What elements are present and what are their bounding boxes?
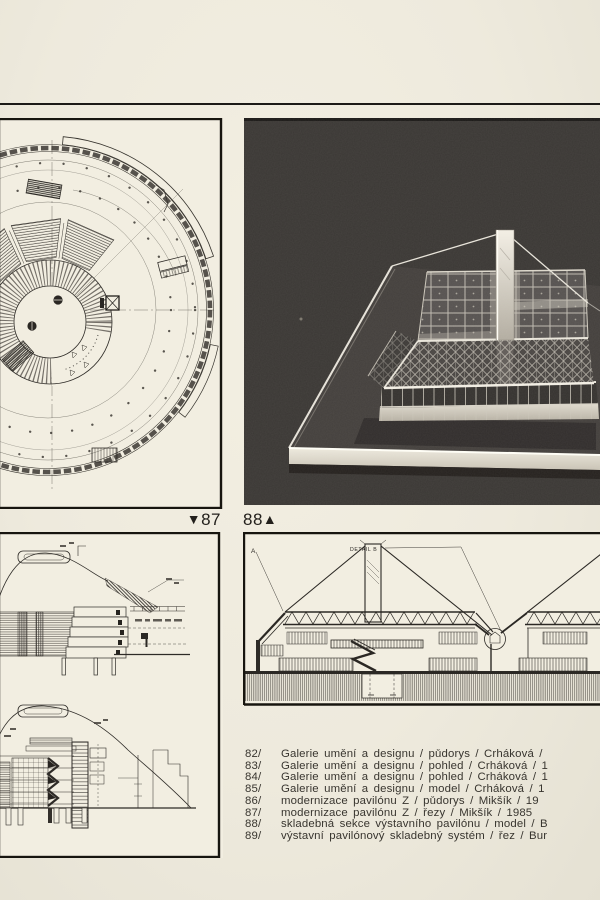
caption-row-86: 86/modernizace pavilónu Z / půdorys / Mi… [245, 796, 600, 808]
caption-text: Galerie umění a designu / model / Crháko… [281, 784, 600, 796]
caption-row-82: 82/Galerie umění a designu / půdorys / C… [245, 749, 600, 761]
figure-ref-88: 88▲ [243, 510, 277, 530]
figure-ref-88-number: 88 [243, 510, 263, 529]
panel-sections-pavilon-z [0, 532, 223, 858]
caption-text: modernizace pavilónu Z / řezy / Mikšík /… [281, 808, 600, 820]
caption-number: 89/ [245, 831, 281, 843]
caption-list: 82/Galerie umění a designu / půdorys / C… [245, 749, 600, 843]
section-label-a: A [251, 548, 256, 555]
caption-text: Galerie umění a designu / pohled / Crhák… [281, 772, 600, 784]
sections-drawing [0, 532, 223, 858]
caption-text: Galerie umění a designu / pohled / Crhák… [281, 761, 600, 773]
caption-row-88: 88/skladebná sekce výstavního pavilónu /… [245, 819, 600, 831]
caption-row-87: 87/modernizace pavilónu Z / řezy / Mikší… [245, 808, 600, 820]
caption-row-83: 83/Galerie umění a designu / pohled / Cr… [245, 761, 600, 773]
panel-plan-pavilon-z [0, 118, 223, 509]
caption-text: skladebná sekce výstavního pavilónu / mo… [281, 819, 600, 831]
floor-plan-drawing [0, 118, 223, 509]
caption-number: 82/ [245, 749, 281, 761]
panel-section-system: A DETAIL B [243, 532, 600, 706]
top-rule [0, 103, 600, 105]
triangle-up-icon: ▲ [263, 511, 277, 527]
figure-ref-87: ▼87 [0, 510, 221, 530]
section-label-detail-b: DETAIL B [350, 547, 377, 553]
figure-ref-87-number: 87 [201, 510, 221, 529]
caption-row-89: 89/výstavní pavilónový skladebný systém … [245, 831, 600, 843]
caption-text: Galerie umění a designu / půdorys / Crhá… [281, 749, 600, 761]
caption-row-85: 85/Galerie umění a designu / model / Crh… [245, 784, 600, 796]
caption-row-84: 84/Galerie umění a designu / pohled / Cr… [245, 772, 600, 784]
scanned-page: ▼87 88▲ [0, 0, 600, 900]
caption-number: 86/ [245, 796, 281, 808]
model-photograph [244, 118, 600, 505]
caption-text: výstavní pavilónový skladebný systém / ř… [281, 831, 600, 843]
system-section-drawing: A DETAIL B [243, 532, 600, 706]
caption-text: modernizace pavilónu Z / půdorys / Mikší… [281, 796, 600, 808]
panel-photo-model [244, 118, 600, 505]
triangle-down-icon: ▼ [187, 511, 201, 527]
